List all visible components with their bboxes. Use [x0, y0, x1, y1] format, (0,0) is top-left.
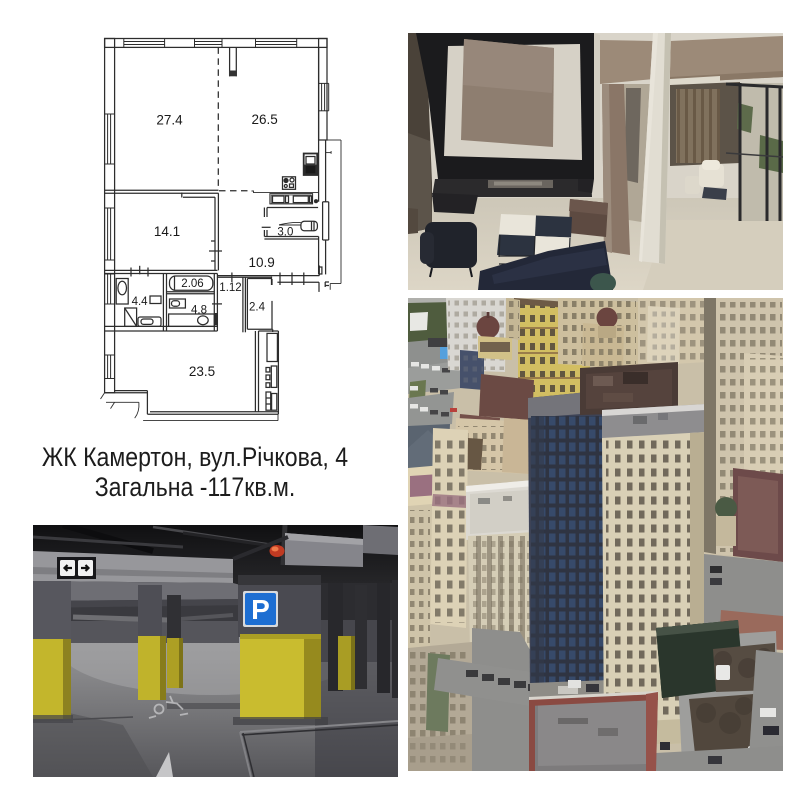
svg-text:4.8: 4.8	[191, 305, 207, 317]
svg-text:10.9: 10.9	[248, 255, 274, 270]
svg-text:23.5: 23.5	[189, 364, 215, 379]
svg-text:27.4: 27.4	[156, 113, 183, 128]
svg-text:1.12: 1.12	[219, 282, 241, 294]
svg-text:2.06: 2.06	[181, 278, 203, 290]
svg-text:2.4: 2.4	[249, 302, 266, 314]
svg-text:4.4: 4.4	[132, 296, 149, 308]
svg-text:P: P	[251, 594, 270, 625]
svg-text:3.0: 3.0	[277, 227, 293, 239]
svg-text:26.5: 26.5	[251, 112, 277, 127]
svg-text:14.1: 14.1	[154, 224, 180, 239]
